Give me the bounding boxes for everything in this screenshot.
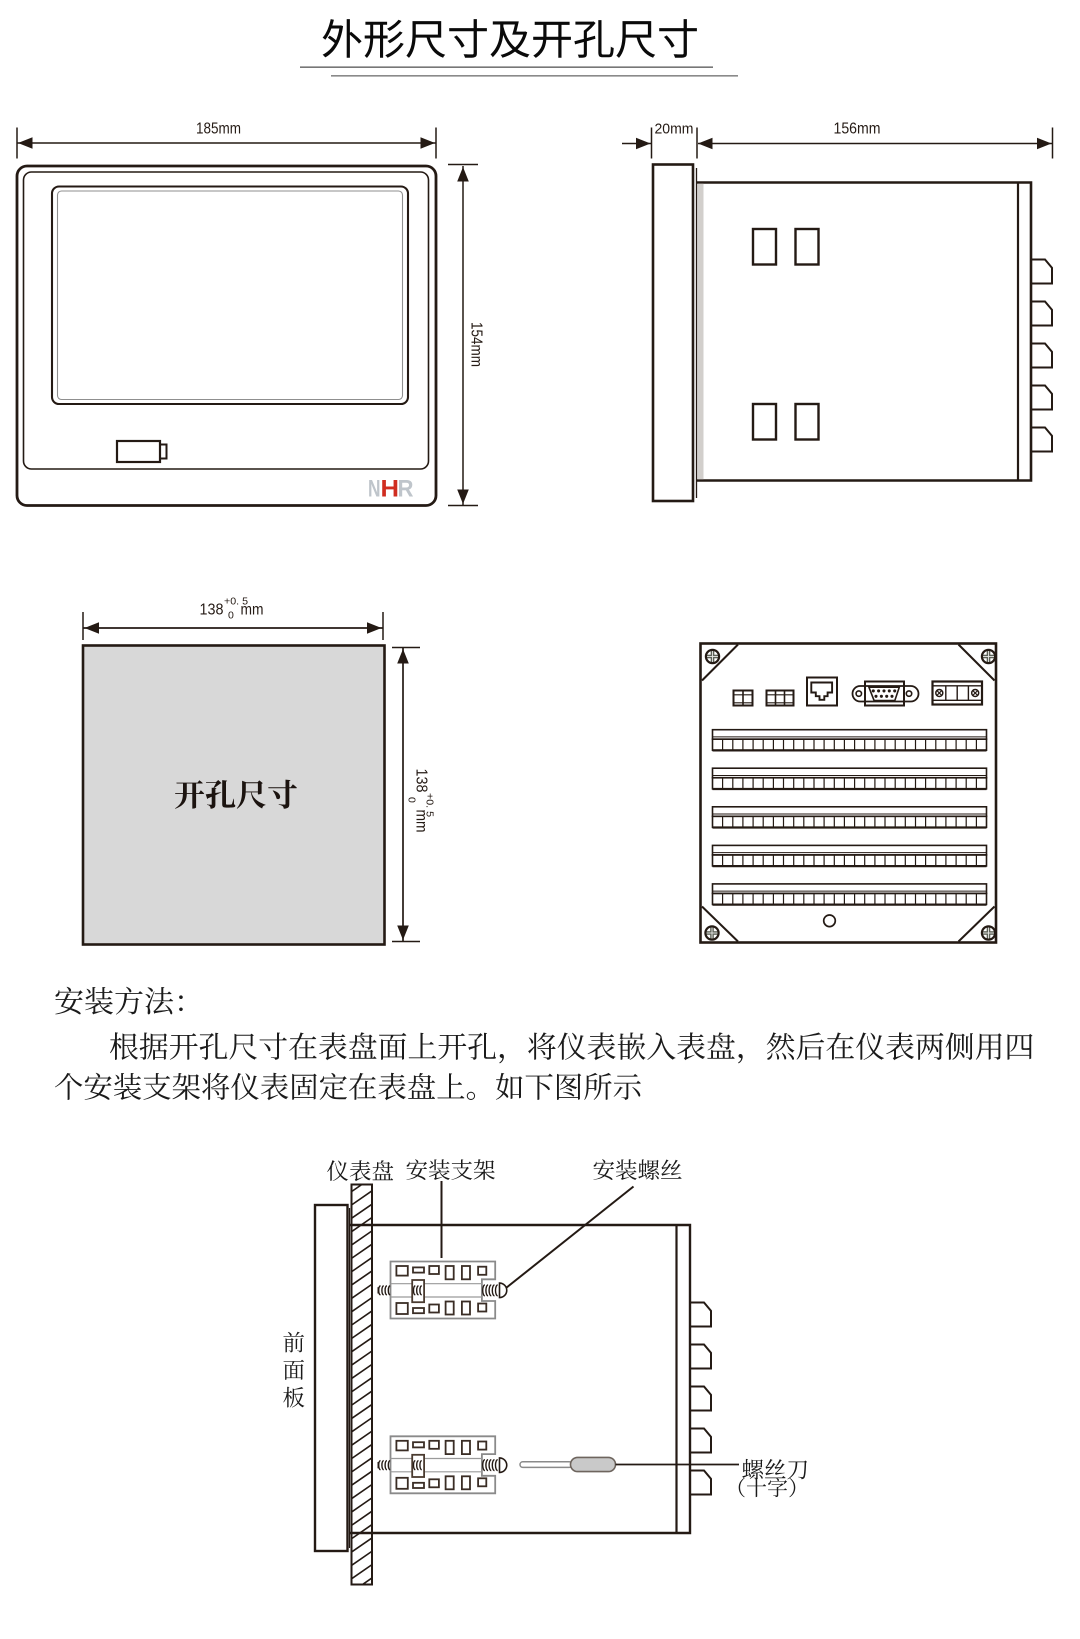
- svg-text:185mm: 185mm: [196, 121, 241, 138]
- svg-text:20mm: 20mm: [655, 121, 694, 138]
- svg-text:R: R: [398, 476, 414, 503]
- svg-text:mm: mm: [241, 602, 264, 619]
- svg-text:0: 0: [228, 610, 234, 622]
- svg-text:0: 0: [406, 797, 418, 803]
- svg-text:mm: mm: [413, 810, 430, 833]
- svg-text:138: 138: [200, 602, 224, 619]
- svg-text:154mm: 154mm: [468, 322, 485, 367]
- svg-text:138: 138: [413, 769, 430, 793]
- svg-text:N: N: [368, 476, 381, 503]
- svg-text:H: H: [381, 476, 400, 503]
- svg-text:156mm: 156mm: [834, 121, 881, 138]
